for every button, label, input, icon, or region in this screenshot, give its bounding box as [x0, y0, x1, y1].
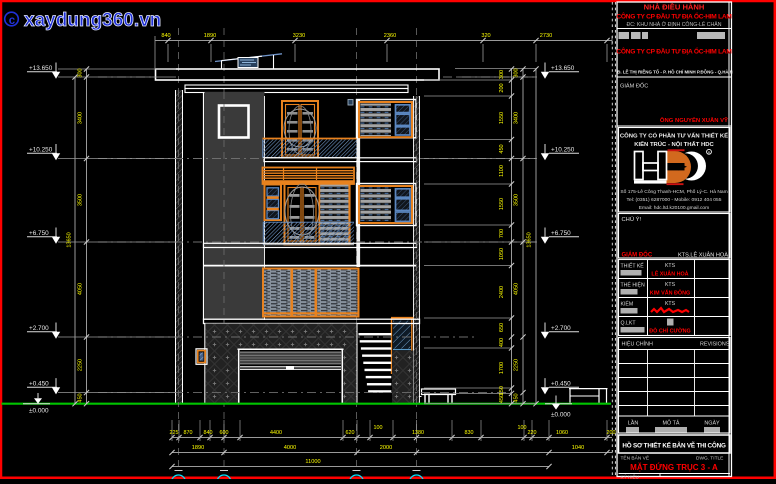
- svg-text:+10.250: +10.250: [29, 146, 53, 153]
- svg-text:300: 300: [78, 68, 84, 77]
- svg-text:100: 100: [518, 425, 527, 431]
- svg-text:ĐC: KHU NHÀ Ở ĐỊNH CÔNG-LÊ CHÂ: ĐC: KHU NHÀ Ở ĐỊNH CÔNG-LÊ CHÂN: [627, 20, 722, 28]
- svg-text:2250: 2250: [514, 359, 520, 371]
- svg-text:400: 400: [499, 338, 505, 347]
- svg-text:1890: 1890: [192, 445, 204, 451]
- svg-text:KIẾN TRÚC - NỘI THẤT HDC: KIẾN TRÚC - NỘI THẤT HDC: [634, 140, 714, 148]
- svg-text:1380: 1380: [412, 430, 424, 436]
- svg-text:KIM VĂN ĐÔNG: KIM VĂN ĐÔNG: [650, 289, 690, 297]
- svg-text:225: 225: [170, 430, 179, 436]
- svg-text:KIỂM: KIỂM: [621, 301, 634, 308]
- svg-text:1040: 1040: [572, 445, 584, 451]
- svg-text:700: 700: [499, 229, 505, 238]
- svg-text:REVISIONS: REVISIONS: [700, 342, 730, 348]
- svg-text:100: 100: [374, 425, 383, 431]
- svg-text:320: 320: [481, 33, 490, 39]
- svg-text:±0.000: ±0.000: [29, 408, 49, 415]
- svg-text:ÔNG NGUYỄN XUÂN VỸ: ÔNG NGUYỄN XUÂN VỸ: [660, 116, 728, 124]
- svg-text:c: c: [9, 15, 16, 27]
- svg-text:4050: 4050: [78, 283, 84, 295]
- svg-text:1050: 1050: [499, 248, 505, 260]
- svg-text:Số 175-Lê Công Thanh-HCM, Phố: Số 175-Lê Công Thanh-HCM, Phố Lý-C. Hà N…: [620, 189, 727, 195]
- svg-text:3500: 3500: [78, 194, 84, 206]
- svg-text:3400: 3400: [514, 112, 520, 124]
- svg-text:4050: 4050: [514, 283, 520, 295]
- svg-text:CÔNG TY CỔ PHẦN TƯ VẤN THIẾT K: CÔNG TY CỔ PHẦN TƯ VẤN THIẾT KẾ: [620, 132, 728, 140]
- svg-text:+10.250: +10.250: [551, 146, 575, 153]
- svg-text:ĐC: Đ. LÊ THỊ RIÊNG TỐ - P. HỒ: ĐC: Đ. LÊ THỊ RIÊNG TỐ - P. HỒ CHÍ MINH …: [608, 70, 740, 75]
- svg-text:2000: 2000: [380, 445, 392, 451]
- svg-text:450: 450: [78, 393, 84, 402]
- svg-text:THIẾT KẾ: THIẾT KẾ: [621, 263, 645, 270]
- svg-text:MÔ TẢ: MÔ TẢ: [663, 420, 680, 427]
- svg-text:4000: 4000: [284, 445, 296, 451]
- svg-text:1550: 1550: [499, 198, 505, 210]
- svg-text:2730: 2730: [540, 33, 552, 39]
- svg-text:LẦN: LẦN: [628, 420, 639, 427]
- svg-text:Q.LKT: Q.LKT: [621, 321, 637, 327]
- svg-text:13650: 13650: [67, 232, 73, 247]
- svg-text:CHÚ Ý!: CHÚ Ý!: [622, 216, 642, 223]
- svg-text:3400: 3400: [78, 112, 84, 124]
- svg-text:1700: 1700: [499, 362, 505, 374]
- svg-text:NGÀY: NGÀY: [704, 420, 720, 427]
- svg-text:600: 600: [220, 430, 229, 436]
- svg-text:1890: 1890: [204, 33, 216, 39]
- svg-text:+0.450: +0.450: [551, 380, 571, 387]
- svg-text:4400: 4400: [270, 430, 282, 436]
- svg-text:+13.650: +13.650: [29, 65, 53, 72]
- svg-text:1060: 1060: [556, 430, 568, 436]
- svg-text:GIÁM ĐỐC: GIÁM ĐỐC: [622, 252, 653, 259]
- svg-text:300: 300: [514, 68, 520, 77]
- svg-text:450: 450: [499, 394, 505, 403]
- svg-text:620: 620: [346, 430, 355, 436]
- svg-text:1100: 1100: [499, 165, 505, 177]
- svg-text:THỂ HIỆN: THỂ HIỆN: [621, 281, 645, 289]
- svg-text:300: 300: [499, 70, 505, 79]
- svg-text:870: 870: [184, 430, 193, 436]
- svg-text:2360: 2360: [384, 33, 396, 39]
- svg-text:830: 830: [465, 430, 474, 436]
- svg-text:11000: 11000: [305, 459, 320, 465]
- svg-text:3230: 3230: [293, 33, 305, 39]
- svg-text:KTS: KTS: [665, 282, 676, 288]
- svg-text:650: 650: [499, 323, 505, 332]
- svg-text:+2.700: +2.700: [551, 325, 571, 332]
- svg-text:LÊ XUÂN HOÀ: LÊ XUÂN HOÀ: [651, 270, 688, 278]
- svg-text:MẶT ĐỨNG TRỤC 3 - A: MẶT ĐỨNG TRỤC 3 - A: [630, 463, 718, 472]
- svg-text:1550: 1550: [499, 112, 505, 124]
- svg-text:Email: hdc.ltd.k20100.gmail.co: Email: hdc.ltd.k20100.gmail.com: [639, 205, 709, 211]
- svg-text:GIÁM ĐỐC: GIÁM ĐỐC: [620, 83, 648, 90]
- svg-text:HIỆU CHỈNH: HIỆU CHỈNH: [622, 340, 654, 348]
- svg-text:840: 840: [161, 33, 170, 39]
- svg-text:200: 200: [607, 430, 616, 436]
- svg-text:840: 840: [204, 430, 213, 436]
- svg-text:KTS: KTS: [665, 301, 676, 307]
- svg-text:DWG. TITLE: DWG. TITLE: [696, 456, 723, 462]
- svg-text:+6.750: +6.750: [29, 230, 49, 237]
- svg-text:+2.700: +2.700: [29, 325, 49, 332]
- svg-text:xaydung360.vn: xaydung360.vn: [24, 10, 161, 31]
- svg-text:ĐỖ CHÍ CƯỜNG: ĐỖ CHÍ CƯỜNG: [649, 327, 690, 335]
- svg-text:200: 200: [499, 83, 505, 92]
- svg-text:2400: 2400: [499, 286, 505, 298]
- svg-text:450: 450: [514, 393, 520, 402]
- svg-text:450: 450: [499, 144, 505, 153]
- svg-text:±0.000: ±0.000: [551, 412, 571, 419]
- svg-text:+0.450: +0.450: [29, 380, 49, 387]
- svg-text:KTS: KTS: [665, 263, 676, 269]
- svg-text:KTS.LÊ XUÂN HOÀ: KTS.LÊ XUÂN HOÀ: [678, 251, 728, 259]
- svg-text:220: 220: [528, 430, 537, 436]
- svg-text:Tel: (0351) 6287000 - Mobil: Tel: (0351) 6287000 - Mobile: 0912 404 0…: [627, 197, 722, 203]
- svg-text:2250: 2250: [78, 359, 84, 371]
- svg-text:NHÀ ĐIỀU HÀNH: NHÀ ĐIỀU HÀNH: [644, 2, 705, 12]
- svg-text:+13.650: +13.650: [551, 65, 575, 72]
- svg-text:3500: 3500: [514, 194, 520, 206]
- svg-text:+6.750: +6.750: [551, 230, 571, 237]
- svg-text:13650: 13650: [527, 232, 533, 247]
